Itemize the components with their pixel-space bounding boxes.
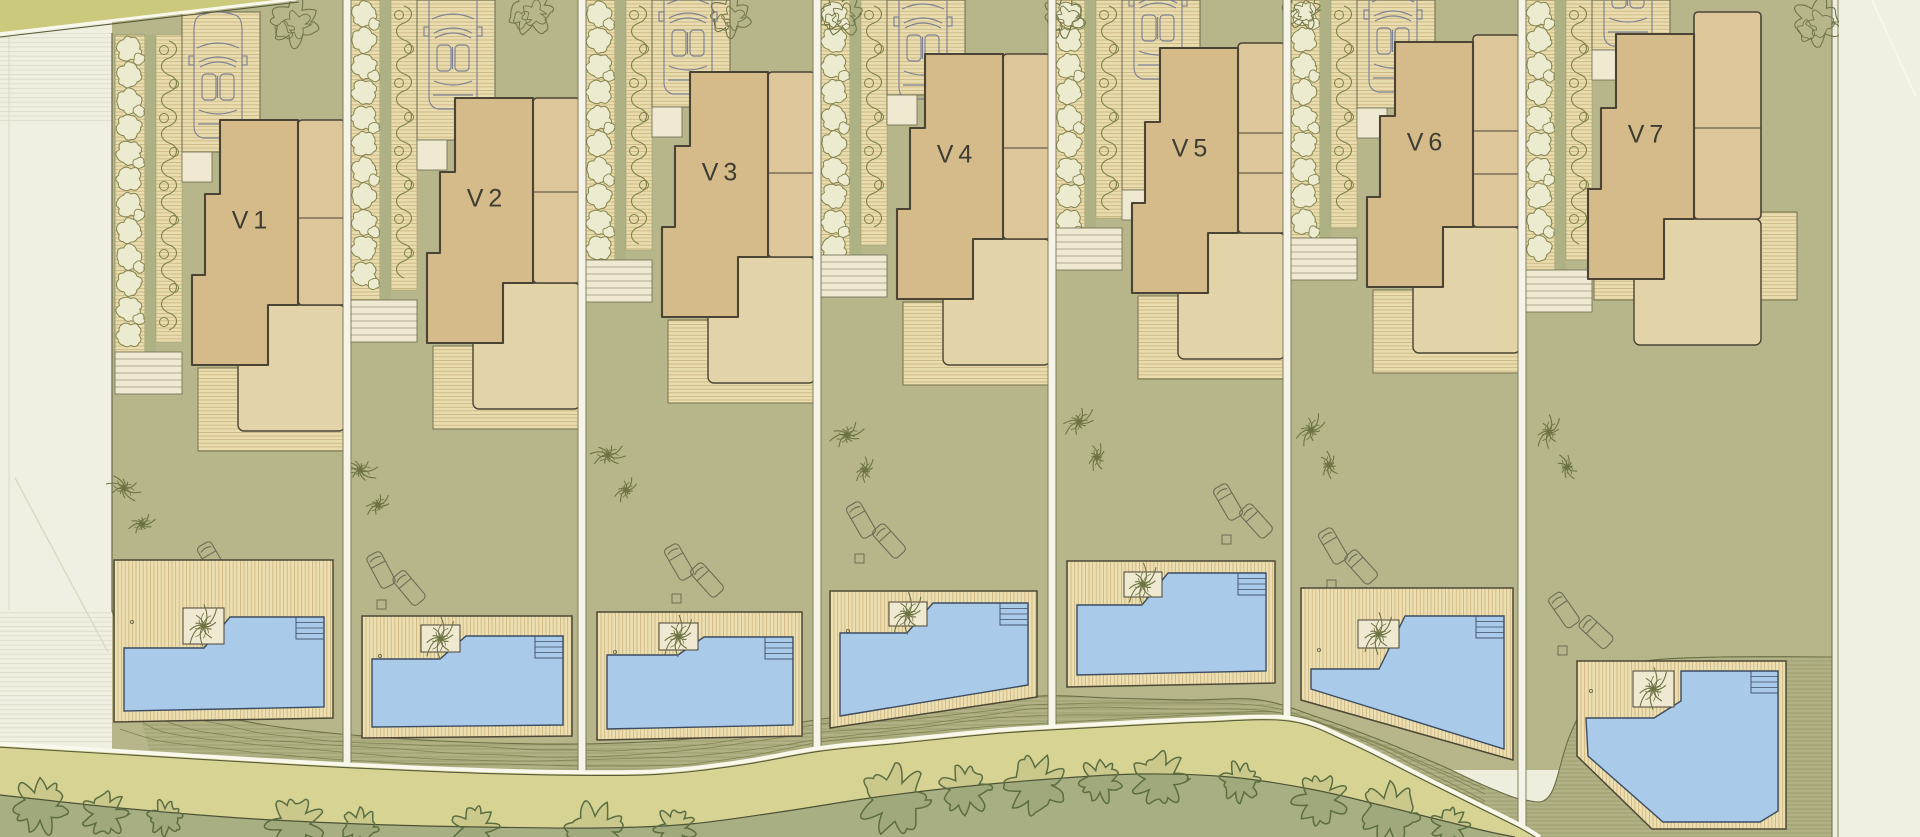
plot-v7: V7 — [1522, 0, 1842, 770]
plot-boundary — [1284, 0, 1291, 718]
villa-label[interactable]: V4 — [937, 141, 978, 169]
hedge-shrubs-icon — [1056, 2, 1085, 238]
garden-steps — [1290, 238, 1357, 280]
plot-boundary — [344, 0, 351, 766]
garden-strip — [1555, 0, 1566, 312]
entry-landing — [182, 152, 212, 182]
entry-landing — [417, 140, 447, 170]
entry-landing — [652, 107, 682, 137]
garden-strip — [850, 0, 861, 297]
plot-boundary — [814, 0, 821, 758]
garden-steps — [1525, 270, 1592, 312]
pool-area — [1067, 561, 1275, 687]
plot-boundary — [1049, 0, 1056, 727]
garden-steps — [1055, 228, 1122, 270]
garden-steps — [820, 255, 887, 297]
pool-area — [362, 616, 572, 738]
right-margin — [1839, 0, 1920, 837]
pool-area — [597, 612, 802, 740]
villa-label[interactable]: V1 — [232, 207, 273, 235]
villa-label[interactable]: V6 — [1407, 129, 1448, 157]
garden-steps — [585, 260, 652, 302]
vine-path — [391, 0, 417, 290]
vine-path — [1331, 0, 1357, 228]
villa-label[interactable]: V3 — [702, 159, 743, 187]
garden-strip — [615, 0, 626, 302]
garden-steps — [115, 352, 182, 394]
site-plan-canvas: V1V2V3V4V5V6V7 — [0, 0, 1920, 837]
site-plan: V1V2V3V4V5V6V7 — [0, 0, 1920, 837]
garden-strip — [145, 35, 156, 394]
garden-strip — [380, 0, 391, 342]
pool-area — [114, 560, 333, 722]
hedge-shrubs-icon — [351, 1, 381, 290]
villa-label[interactable]: V7 — [1628, 121, 1669, 149]
plot-boundary — [1519, 0, 1526, 826]
left-margin — [0, 30, 112, 750]
villa-label[interactable]: V2 — [467, 185, 508, 213]
plot-boundary — [579, 0, 586, 774]
garden-steps — [350, 300, 417, 342]
entry-landing — [887, 95, 917, 125]
villa-label[interactable]: V5 — [1172, 135, 1213, 163]
vine-path — [861, 0, 887, 245]
